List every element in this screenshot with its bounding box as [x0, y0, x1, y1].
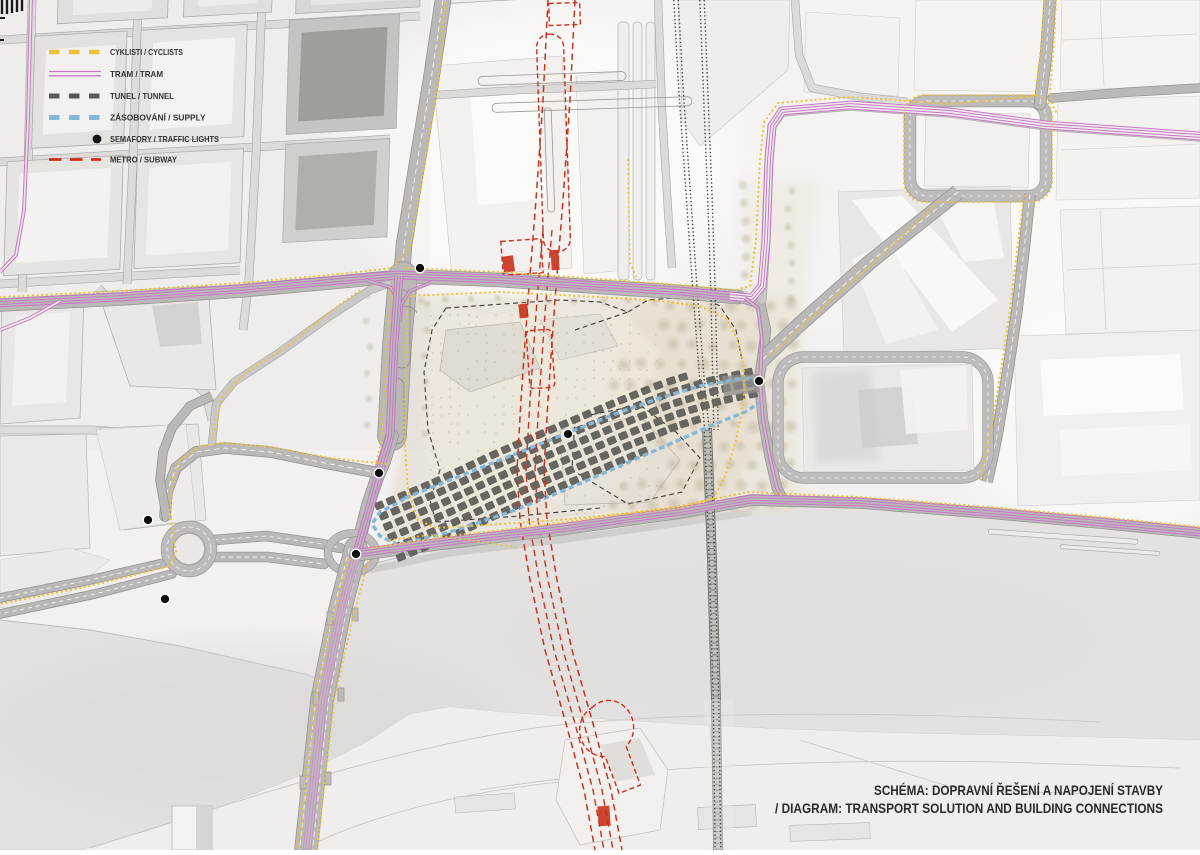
svg-text:SEMAFORY / TRAFFIC LIGHTS: SEMAFORY / TRAFFIC LIGHTS — [110, 134, 219, 144]
svg-text:/ DIAGRAM: TRANSPORT SOLUTION: / DIAGRAM: TRANSPORT SOLUTION AND BUILDI… — [775, 800, 1163, 816]
svg-text:CYKLISTI / CYCLISTS: CYKLISTI / CYCLISTS — [110, 47, 183, 57]
svg-text:SCHÉMA: DOPRAVNÍ ŘEŠENÍ A NAPO: SCHÉMA: DOPRAVNÍ ŘEŠENÍ A NAPOJENÍ STAVB… — [874, 781, 1164, 798]
svg-text:TRAM / TRAM: TRAM / TRAM — [110, 69, 163, 79]
svg-text:TUNEL / TUNNEL: TUNEL / TUNNEL — [110, 91, 174, 101]
svg-text:ZÁSOBOVÁNÍ / SUPPLY: ZÁSOBOVÁNÍ / SUPPLY — [110, 112, 206, 123]
svg-text:METRO / SUBWAY: METRO / SUBWAY — [110, 155, 177, 165]
